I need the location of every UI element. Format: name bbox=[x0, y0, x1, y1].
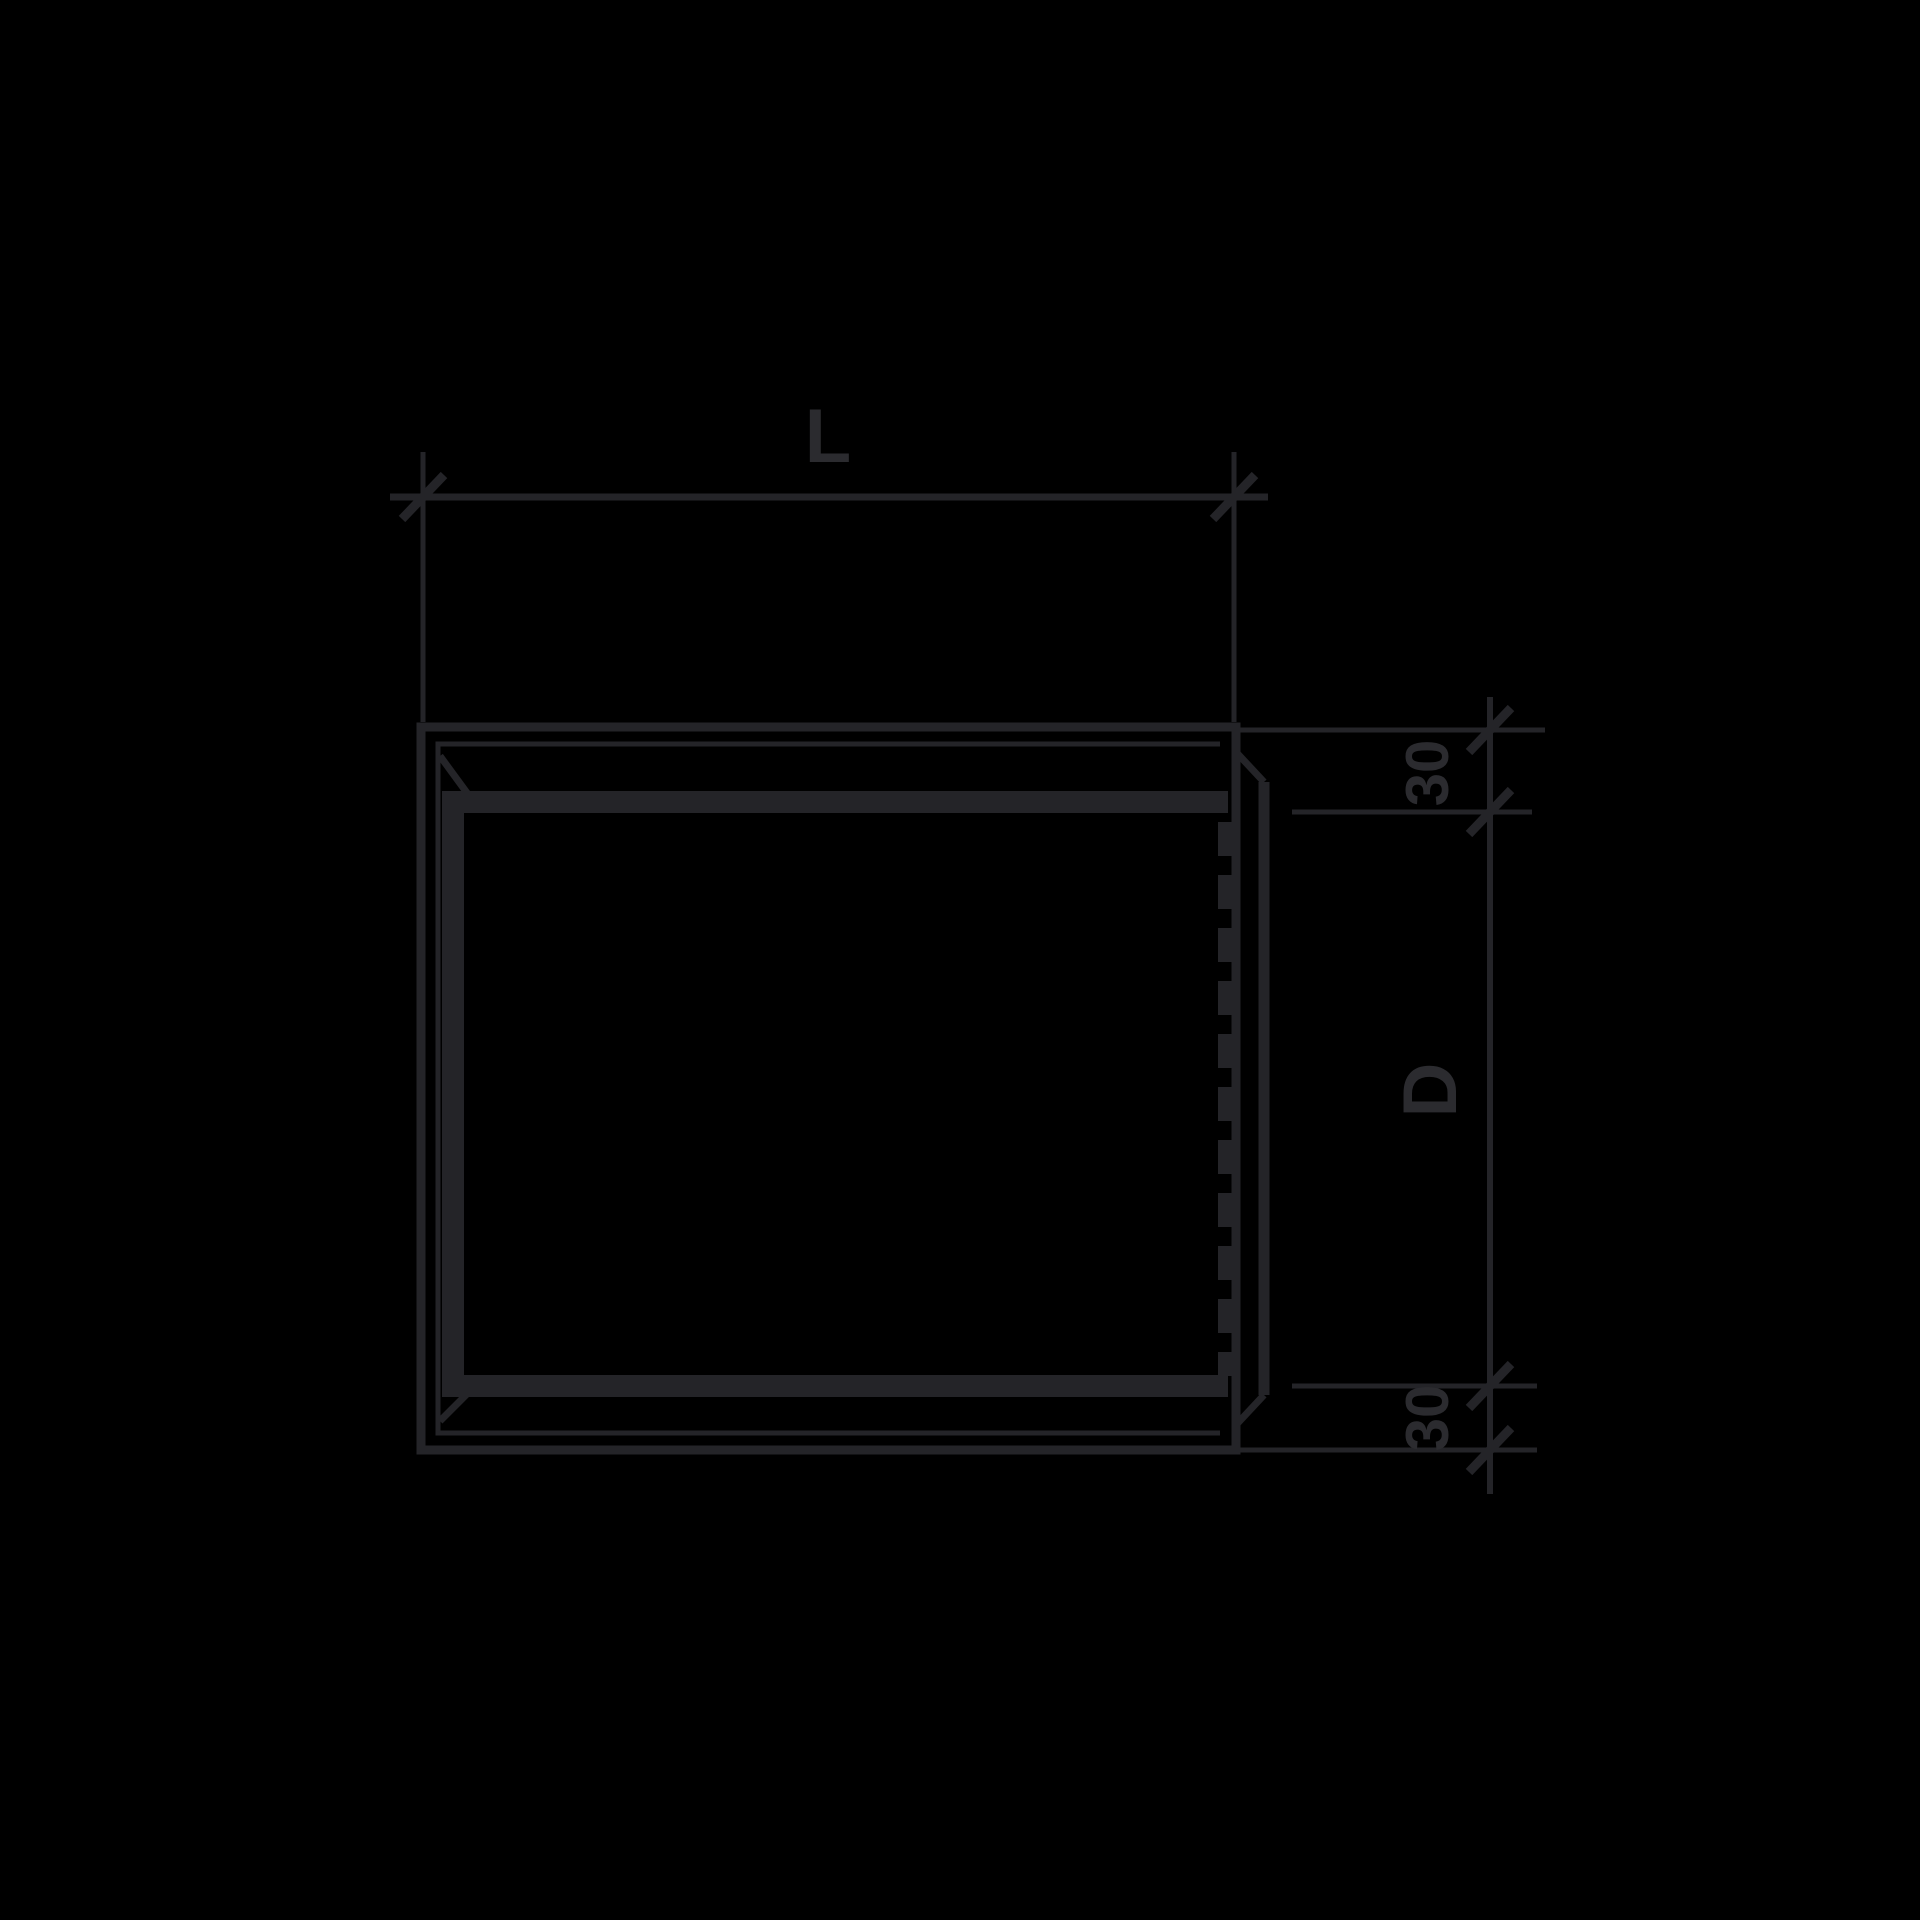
flange-bottom-dim-label: 30 bbox=[1394, 1385, 1461, 1452]
inner-frame-rect bbox=[438, 744, 1220, 1433]
depth-dimension: 30 D 30 bbox=[1236, 697, 1545, 1494]
depth-dim-label: D bbox=[1388, 1063, 1473, 1118]
length-dimension: L bbox=[390, 394, 1268, 722]
body-outline bbox=[421, 727, 1264, 1450]
flange-top-dim-label: 30 bbox=[1394, 740, 1461, 807]
drawing-canvas: L 30 D 30 bbox=[0, 0, 1920, 1920]
outer-body-rect bbox=[421, 727, 1236, 1450]
duct-dimension-drawing: L 30 D 30 bbox=[0, 0, 1920, 1920]
corner-chamfer-top-left bbox=[440, 756, 470, 797]
length-dim-label: L bbox=[805, 394, 851, 479]
